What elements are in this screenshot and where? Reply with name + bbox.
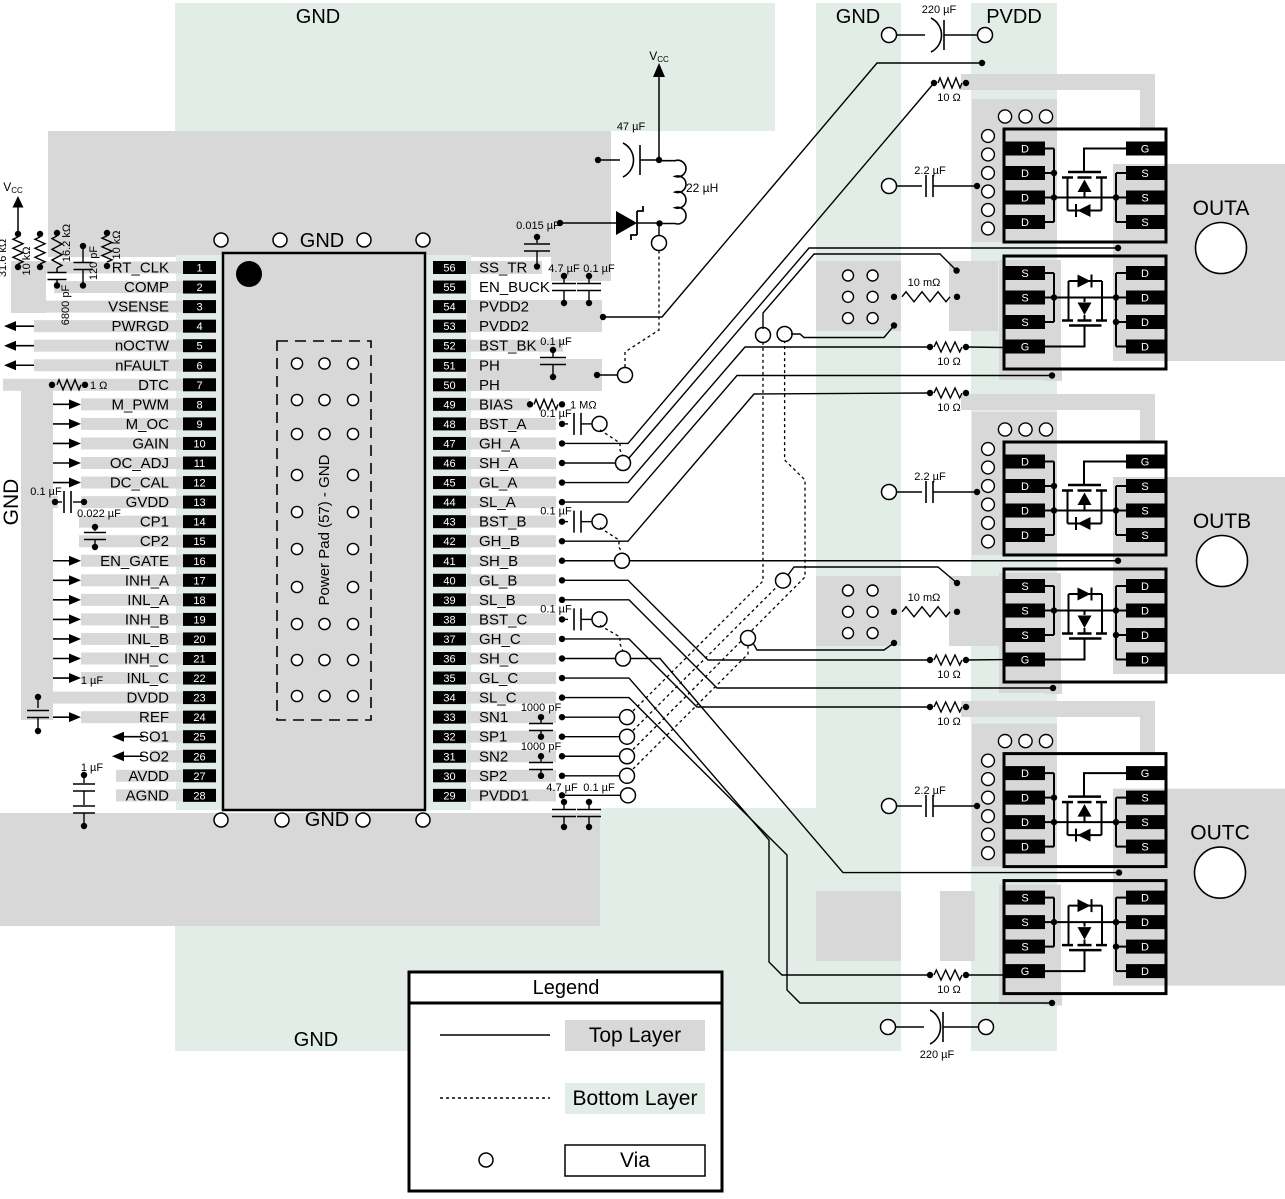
svg-text:2.2 µF: 2.2 µF (914, 471, 946, 483)
svg-text:GND: GND (836, 6, 880, 28)
svg-text:D: D (1021, 530, 1029, 542)
svg-text:GH_A: GH_A (479, 435, 520, 452)
svg-text:7: 7 (196, 380, 202, 392)
svg-text:PVDD1: PVDD1 (479, 787, 529, 804)
svg-text:S: S (1021, 630, 1028, 642)
svg-text:46: 46 (443, 458, 455, 470)
svg-text:S: S (1021, 268, 1028, 280)
svg-text:GH_C: GH_C (479, 631, 521, 648)
svg-text:DVDD: DVDD (126, 690, 169, 707)
svg-text:GND: GND (296, 6, 340, 28)
svg-text:INL_C: INL_C (126, 670, 169, 687)
svg-text:S: S (1141, 193, 1148, 205)
svg-text:G: G (1021, 966, 1030, 978)
svg-text:56: 56 (443, 263, 455, 275)
svg-text:D: D (1021, 768, 1029, 780)
svg-text:24: 24 (193, 712, 205, 724)
svg-text:INH_C: INH_C (124, 651, 169, 668)
svg-text:GND: GND (300, 230, 344, 252)
svg-text:0.1 µF: 0.1 µF (540, 408, 572, 420)
svg-text:SN2: SN2 (479, 748, 508, 765)
svg-text:20: 20 (193, 634, 205, 646)
svg-text:D: D (1141, 317, 1149, 329)
svg-text:M_PWM: M_PWM (112, 396, 170, 413)
svg-text:INL_B: INL_B (127, 631, 169, 648)
svg-text:23: 23 (193, 693, 205, 705)
svg-text:GAIN: GAIN (132, 435, 169, 452)
svg-text:11: 11 (194, 458, 205, 470)
svg-text:27: 27 (193, 771, 205, 783)
svg-text:INH_B: INH_B (125, 611, 169, 628)
svg-text:PVDD2: PVDD2 (479, 318, 529, 335)
svg-text:51: 51 (443, 360, 455, 372)
svg-text:10 kΩ: 10 kΩ (21, 246, 33, 275)
svg-text:21: 21 (193, 654, 205, 666)
svg-text:EN_BUCK: EN_BUCK (479, 279, 550, 296)
svg-text:D: D (1141, 606, 1149, 618)
svg-text:D: D (1021, 193, 1029, 205)
svg-text:1 µF: 1 µF (81, 675, 104, 687)
svg-text:D: D (1141, 966, 1149, 978)
svg-text:220 µF: 220 µF (920, 1049, 955, 1061)
svg-text:1: 1 (196, 263, 202, 275)
svg-text:D: D (1021, 506, 1029, 518)
svg-text:30: 30 (443, 771, 455, 783)
svg-text:12: 12 (193, 478, 205, 490)
svg-text:2: 2 (196, 282, 202, 294)
svg-text:8: 8 (196, 399, 202, 411)
svg-text:PH: PH (479, 377, 500, 394)
svg-text:GND: GND (294, 1029, 338, 1051)
svg-text:0.015 µF: 0.015 µF (516, 220, 560, 232)
svg-text:G: G (1141, 144, 1150, 156)
svg-text:220 µF: 220 µF (922, 4, 957, 16)
svg-text:Power Pad (57) - GND: Power Pad (57) - GND (316, 454, 333, 605)
svg-text:0.022 µF: 0.022 µF (77, 508, 121, 520)
svg-text:G: G (1021, 342, 1030, 354)
svg-text:52: 52 (443, 341, 455, 353)
svg-text:S: S (1021, 606, 1028, 618)
svg-text:6800 pF: 6800 pF (60, 285, 72, 326)
svg-text:S: S (1141, 793, 1148, 805)
svg-text:SP1: SP1 (479, 729, 507, 746)
svg-text:nFAULT: nFAULT (115, 357, 169, 374)
svg-text:REF: REF (139, 709, 169, 726)
svg-text:34: 34 (443, 693, 455, 705)
svg-text:INL_A: INL_A (127, 592, 169, 609)
svg-text:GL_B: GL_B (479, 572, 517, 589)
svg-text:D: D (1141, 893, 1149, 905)
svg-text:D: D (1021, 457, 1029, 469)
svg-text:S: S (1021, 917, 1028, 929)
svg-text:EN_GATE: EN_GATE (100, 553, 169, 570)
svg-text:0.1 µF: 0.1 µF (30, 486, 62, 498)
svg-text:D: D (1021, 168, 1029, 180)
svg-text:SH_B: SH_B (479, 553, 518, 570)
svg-text:S: S (1021, 581, 1028, 593)
svg-text:G: G (1141, 768, 1150, 780)
svg-text:0.1 µF: 0.1 µF (540, 506, 572, 518)
svg-text:17: 17 (193, 575, 205, 587)
svg-text:SP2: SP2 (479, 768, 507, 785)
svg-text:2.2 µF: 2.2 µF (914, 165, 946, 177)
svg-text:10 mΩ: 10 mΩ (908, 277, 941, 289)
svg-text:S: S (1021, 293, 1028, 305)
svg-text:D: D (1021, 481, 1029, 493)
svg-text:D: D (1141, 630, 1149, 642)
svg-text:120 pF: 120 pF (88, 246, 100, 281)
svg-text:45: 45 (443, 478, 455, 490)
svg-text:42: 42 (443, 536, 455, 548)
svg-text:39: 39 (443, 595, 455, 607)
svg-text:26: 26 (193, 751, 205, 763)
svg-text:43: 43 (443, 517, 455, 529)
svg-text:PWRGD: PWRGD (112, 318, 170, 335)
svg-text:COMP: COMP (124, 279, 169, 296)
svg-text:41: 41 (443, 556, 455, 568)
svg-text:29: 29 (443, 790, 455, 802)
svg-text:D: D (1141, 942, 1149, 954)
svg-text:4: 4 (196, 321, 202, 333)
svg-text:49: 49 (443, 399, 455, 411)
svg-text:Via: Via (620, 1149, 650, 1172)
svg-text:36: 36 (443, 654, 455, 666)
svg-text:54: 54 (443, 302, 455, 314)
svg-text:1000 pF: 1000 pF (521, 702, 562, 714)
svg-text:6: 6 (196, 360, 202, 372)
svg-text:GL_C: GL_C (479, 670, 518, 687)
svg-text:D: D (1141, 342, 1149, 354)
svg-text:SS_TR: SS_TR (479, 260, 528, 277)
svg-text:10 kΩ: 10 kΩ (111, 230, 123, 259)
svg-text:50: 50 (443, 380, 455, 392)
svg-text:18: 18 (193, 595, 205, 607)
svg-text:38: 38 (443, 614, 455, 626)
svg-text:D: D (1141, 655, 1149, 667)
svg-text:AGND: AGND (126, 787, 170, 804)
svg-text:S: S (1021, 893, 1028, 905)
svg-text:SL_B: SL_B (479, 592, 516, 609)
svg-text:10 Ω: 10 Ω (937, 402, 961, 414)
svg-text:47 µF: 47 µF (617, 121, 646, 133)
svg-text:SL_A: SL_A (479, 494, 516, 511)
svg-text:2.2 µF: 2.2 µF (914, 785, 946, 797)
svg-text:PVDD: PVDD (986, 6, 1042, 28)
svg-text:S: S (1141, 217, 1148, 229)
svg-text:10: 10 (193, 438, 205, 450)
svg-text:AVDD: AVDD (128, 768, 169, 785)
svg-text:0.1 µF: 0.1 µF (583, 782, 615, 794)
svg-text:M_OC: M_OC (126, 416, 170, 433)
svg-text:55: 55 (443, 282, 455, 294)
svg-text:31: 31 (443, 751, 455, 763)
svg-text:10 Ω: 10 Ω (937, 669, 961, 681)
svg-text:D: D (1021, 793, 1029, 805)
svg-text:22 µH: 22 µH (686, 181, 718, 195)
svg-text:15: 15 (193, 536, 205, 548)
svg-text:53: 53 (443, 321, 455, 333)
svg-text:44: 44 (443, 497, 455, 509)
svg-text:D: D (1141, 917, 1149, 929)
svg-text:PH: PH (479, 357, 500, 374)
svg-text:31.6 kΩ: 31.6 kΩ (0, 239, 9, 277)
svg-text:VSENSE: VSENSE (108, 299, 169, 316)
svg-text:G: G (1141, 457, 1150, 469)
svg-text:19: 19 (193, 614, 205, 626)
svg-text:5: 5 (196, 341, 202, 353)
svg-text:13: 13 (193, 497, 205, 509)
svg-text:BST_BK: BST_BK (479, 338, 537, 355)
svg-text:INH_A: INH_A (125, 572, 169, 589)
svg-text:GND: GND (305, 809, 349, 831)
svg-text:SN1: SN1 (479, 709, 508, 726)
svg-text:OC_ADJ: OC_ADJ (110, 455, 169, 472)
svg-text:D: D (1141, 268, 1149, 280)
svg-text:1 Ω: 1 Ω (90, 380, 107, 392)
svg-text:S: S (1141, 168, 1148, 180)
svg-text:S: S (1141, 481, 1148, 493)
svg-text:D: D (1141, 581, 1149, 593)
svg-text:14: 14 (193, 517, 205, 529)
svg-text:S: S (1021, 942, 1028, 954)
svg-text:BIAS: BIAS (479, 396, 513, 413)
svg-text:DTC: DTC (138, 377, 169, 394)
svg-text:3: 3 (196, 302, 202, 314)
svg-text:16.2 kΩ: 16.2 kΩ (61, 224, 73, 262)
svg-text:10 Ω: 10 Ω (937, 92, 961, 104)
svg-text:S: S (1141, 842, 1148, 854)
svg-text:37: 37 (443, 634, 455, 646)
svg-text:GH_B: GH_B (479, 533, 520, 550)
svg-text:D: D (1021, 144, 1029, 156)
svg-text:Bottom Layer: Bottom Layer (573, 1087, 698, 1110)
svg-text:GL_A: GL_A (479, 475, 517, 492)
svg-text:S: S (1141, 506, 1148, 518)
svg-text:SH_C: SH_C (479, 651, 519, 668)
svg-text:Top Layer: Top Layer (589, 1024, 681, 1047)
svg-text:D: D (1141, 293, 1149, 305)
svg-text:10 Ω: 10 Ω (937, 716, 961, 728)
svg-text:S: S (1141, 817, 1148, 829)
svg-text:47: 47 (443, 438, 455, 450)
svg-text:40: 40 (443, 575, 455, 587)
svg-text:DC_CAL: DC_CAL (110, 475, 169, 492)
svg-text:nOCTW: nOCTW (115, 338, 170, 355)
svg-text:S: S (1141, 530, 1148, 542)
svg-text:28: 28 (193, 790, 205, 802)
svg-text:10 Ω: 10 Ω (937, 984, 961, 996)
svg-text:OUTC: OUTC (1190, 822, 1250, 845)
svg-text:Legend: Legend (533, 977, 600, 999)
svg-text:PVDD2: PVDD2 (479, 299, 529, 316)
svg-text:25: 25 (193, 732, 205, 744)
svg-text:10 mΩ: 10 mΩ (908, 592, 941, 604)
svg-text:0.1 µF: 0.1 µF (540, 336, 572, 348)
svg-text:16: 16 (193, 556, 205, 568)
svg-text:BST_B: BST_B (479, 514, 527, 531)
svg-text:0.1 µF: 0.1 µF (540, 603, 572, 615)
svg-text:1000 pF: 1000 pF (521, 741, 562, 753)
svg-text:OUTB: OUTB (1193, 510, 1251, 533)
svg-text:GND: GND (0, 479, 23, 526)
svg-text:1 MΩ: 1 MΩ (570, 399, 597, 411)
svg-text:D: D (1021, 842, 1029, 854)
svg-text:CP1: CP1 (140, 514, 169, 531)
svg-text:32: 32 (443, 732, 455, 744)
svg-text:BST_C: BST_C (479, 611, 528, 628)
svg-text:OUTA: OUTA (1193, 197, 1250, 220)
svg-text:10 Ω: 10 Ω (937, 356, 961, 368)
svg-text:D: D (1021, 217, 1029, 229)
svg-text:RT_CLK: RT_CLK (112, 260, 169, 277)
svg-text:CP2: CP2 (140, 533, 169, 550)
svg-text:48: 48 (443, 419, 455, 431)
svg-text:G: G (1021, 655, 1030, 667)
svg-text:SH_A: SH_A (479, 455, 518, 472)
svg-text:D: D (1021, 817, 1029, 829)
svg-text:BST_A: BST_A (479, 416, 527, 433)
svg-text:SL_C: SL_C (479, 690, 517, 707)
svg-text:9: 9 (196, 419, 202, 431)
svg-text:33: 33 (443, 712, 455, 724)
svg-text:GVDD: GVDD (126, 494, 170, 511)
svg-text:35: 35 (443, 673, 455, 685)
svg-text:22: 22 (193, 673, 205, 685)
svg-text:S: S (1021, 317, 1028, 329)
